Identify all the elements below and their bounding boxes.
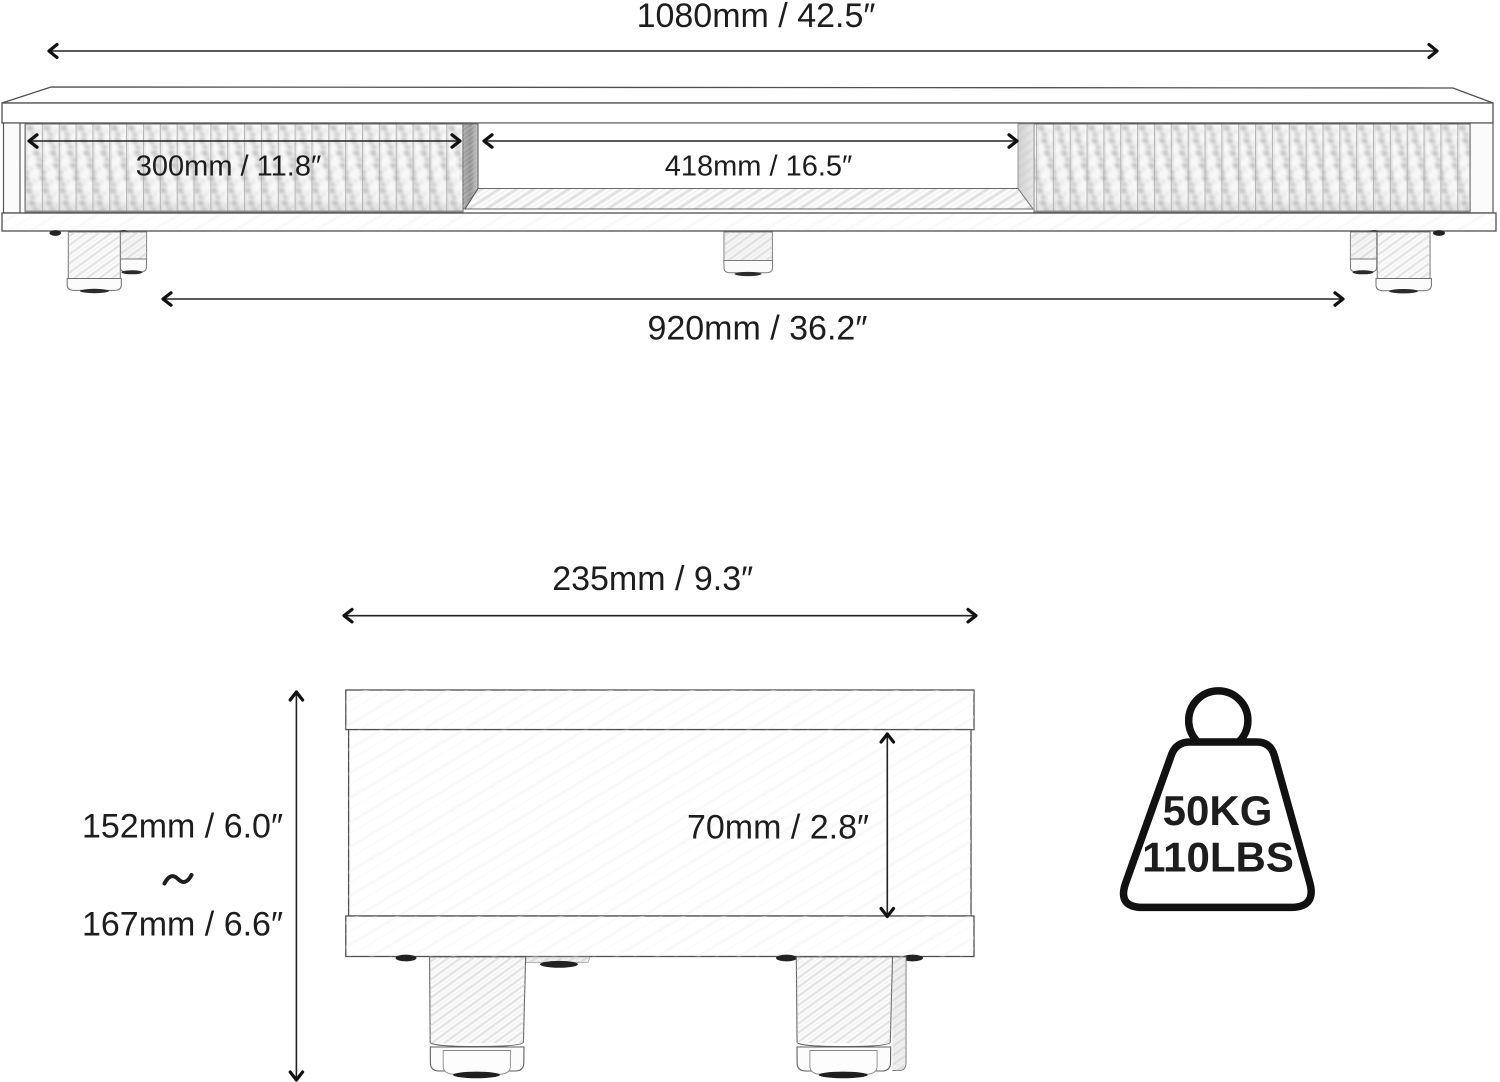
svg-text:152mm / 6.0″: 152mm / 6.0″	[82, 808, 283, 846]
svg-text:920mm / 36.2″: 920mm / 36.2″	[647, 310, 867, 348]
svg-text:235mm / 9.3″: 235mm / 9.3″	[552, 560, 753, 598]
svg-text:110LBS: 110LBS	[1142, 834, 1294, 881]
svg-text:50KG: 50KG	[1163, 787, 1273, 834]
svg-text:167mm / 6.6″: 167mm / 6.6″	[82, 906, 283, 944]
svg-text:300mm / 11.8″: 300mm / 11.8″	[136, 151, 321, 183]
svg-text:1080mm / 42.5″: 1080mm / 42.5″	[637, 0, 876, 35]
svg-text:418mm / 16.5″: 418mm / 16.5″	[665, 151, 853, 183]
svg-text:70mm / 2.8″: 70mm / 2.8″	[687, 809, 869, 847]
